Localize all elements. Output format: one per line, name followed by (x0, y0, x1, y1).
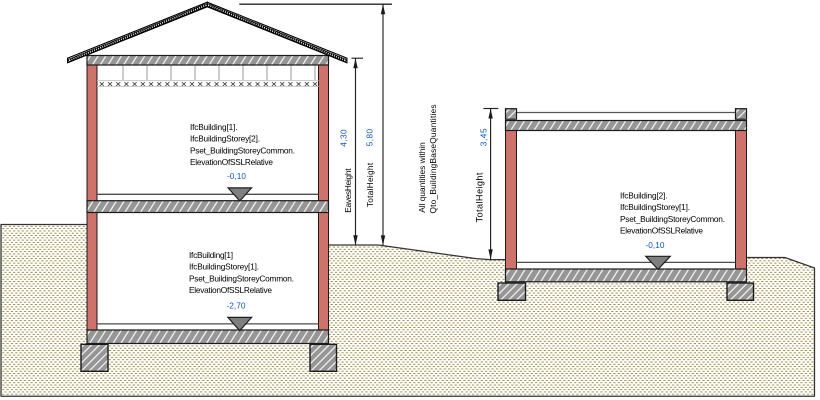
svg-text:-2,70: -2,70 (227, 301, 246, 311)
svg-text:IfcBuildingStorey[1].: IfcBuildingStorey[1]. (620, 202, 690, 212)
svg-text:IfcBuilding[1].: IfcBuilding[1]. (190, 122, 238, 132)
svg-text:ElevationOfSSLRelative: ElevationOfSSLRelative (190, 157, 273, 167)
svg-text:4,30: 4,30 (339, 129, 349, 147)
svg-text:IfcBuilding[1]: IfcBuilding[1] (189, 250, 233, 260)
svg-text:TotalHeight: TotalHeight (475, 172, 485, 222)
svg-text:-0,10: -0,10 (646, 240, 665, 250)
svg-text:IfcBuildingStorey[2].: IfcBuildingStorey[2]. (190, 134, 260, 144)
svg-text:TotalHeight: TotalHeight (365, 162, 375, 207)
svg-text:Pset_BuildingStoreyCommon.: Pset_BuildingStoreyCommon. (190, 145, 295, 155)
svg-text:3,45: 3,45 (478, 128, 488, 146)
svg-text:Pset_BuildingStoreyCommon.: Pset_BuildingStoreyCommon. (620, 214, 725, 224)
svg-text:ElevationOfSSLRelative: ElevationOfSSLRelative (189, 285, 272, 295)
svg-text:5,80: 5,80 (364, 129, 374, 147)
svg-text:-0,10: -0,10 (227, 171, 246, 181)
svg-text:All quantities within: All quantities within (417, 142, 427, 213)
svg-text:ElevationOfSSLRelative: ElevationOfSSLRelative (620, 226, 703, 236)
svg-text:IfcBuilding[2].: IfcBuilding[2]. (620, 190, 668, 200)
svg-text:EavesHeight: EavesHeight (343, 168, 353, 213)
svg-text:Pset_BuildingStoreyCommon.: Pset_BuildingStoreyCommon. (189, 273, 294, 283)
svg-text:IfcBuildingStorey[1].: IfcBuildingStorey[1]. (189, 262, 259, 272)
svg-text:Qto_BuildingBaseQuantities: Qto_BuildingBaseQuantities (428, 105, 438, 214)
